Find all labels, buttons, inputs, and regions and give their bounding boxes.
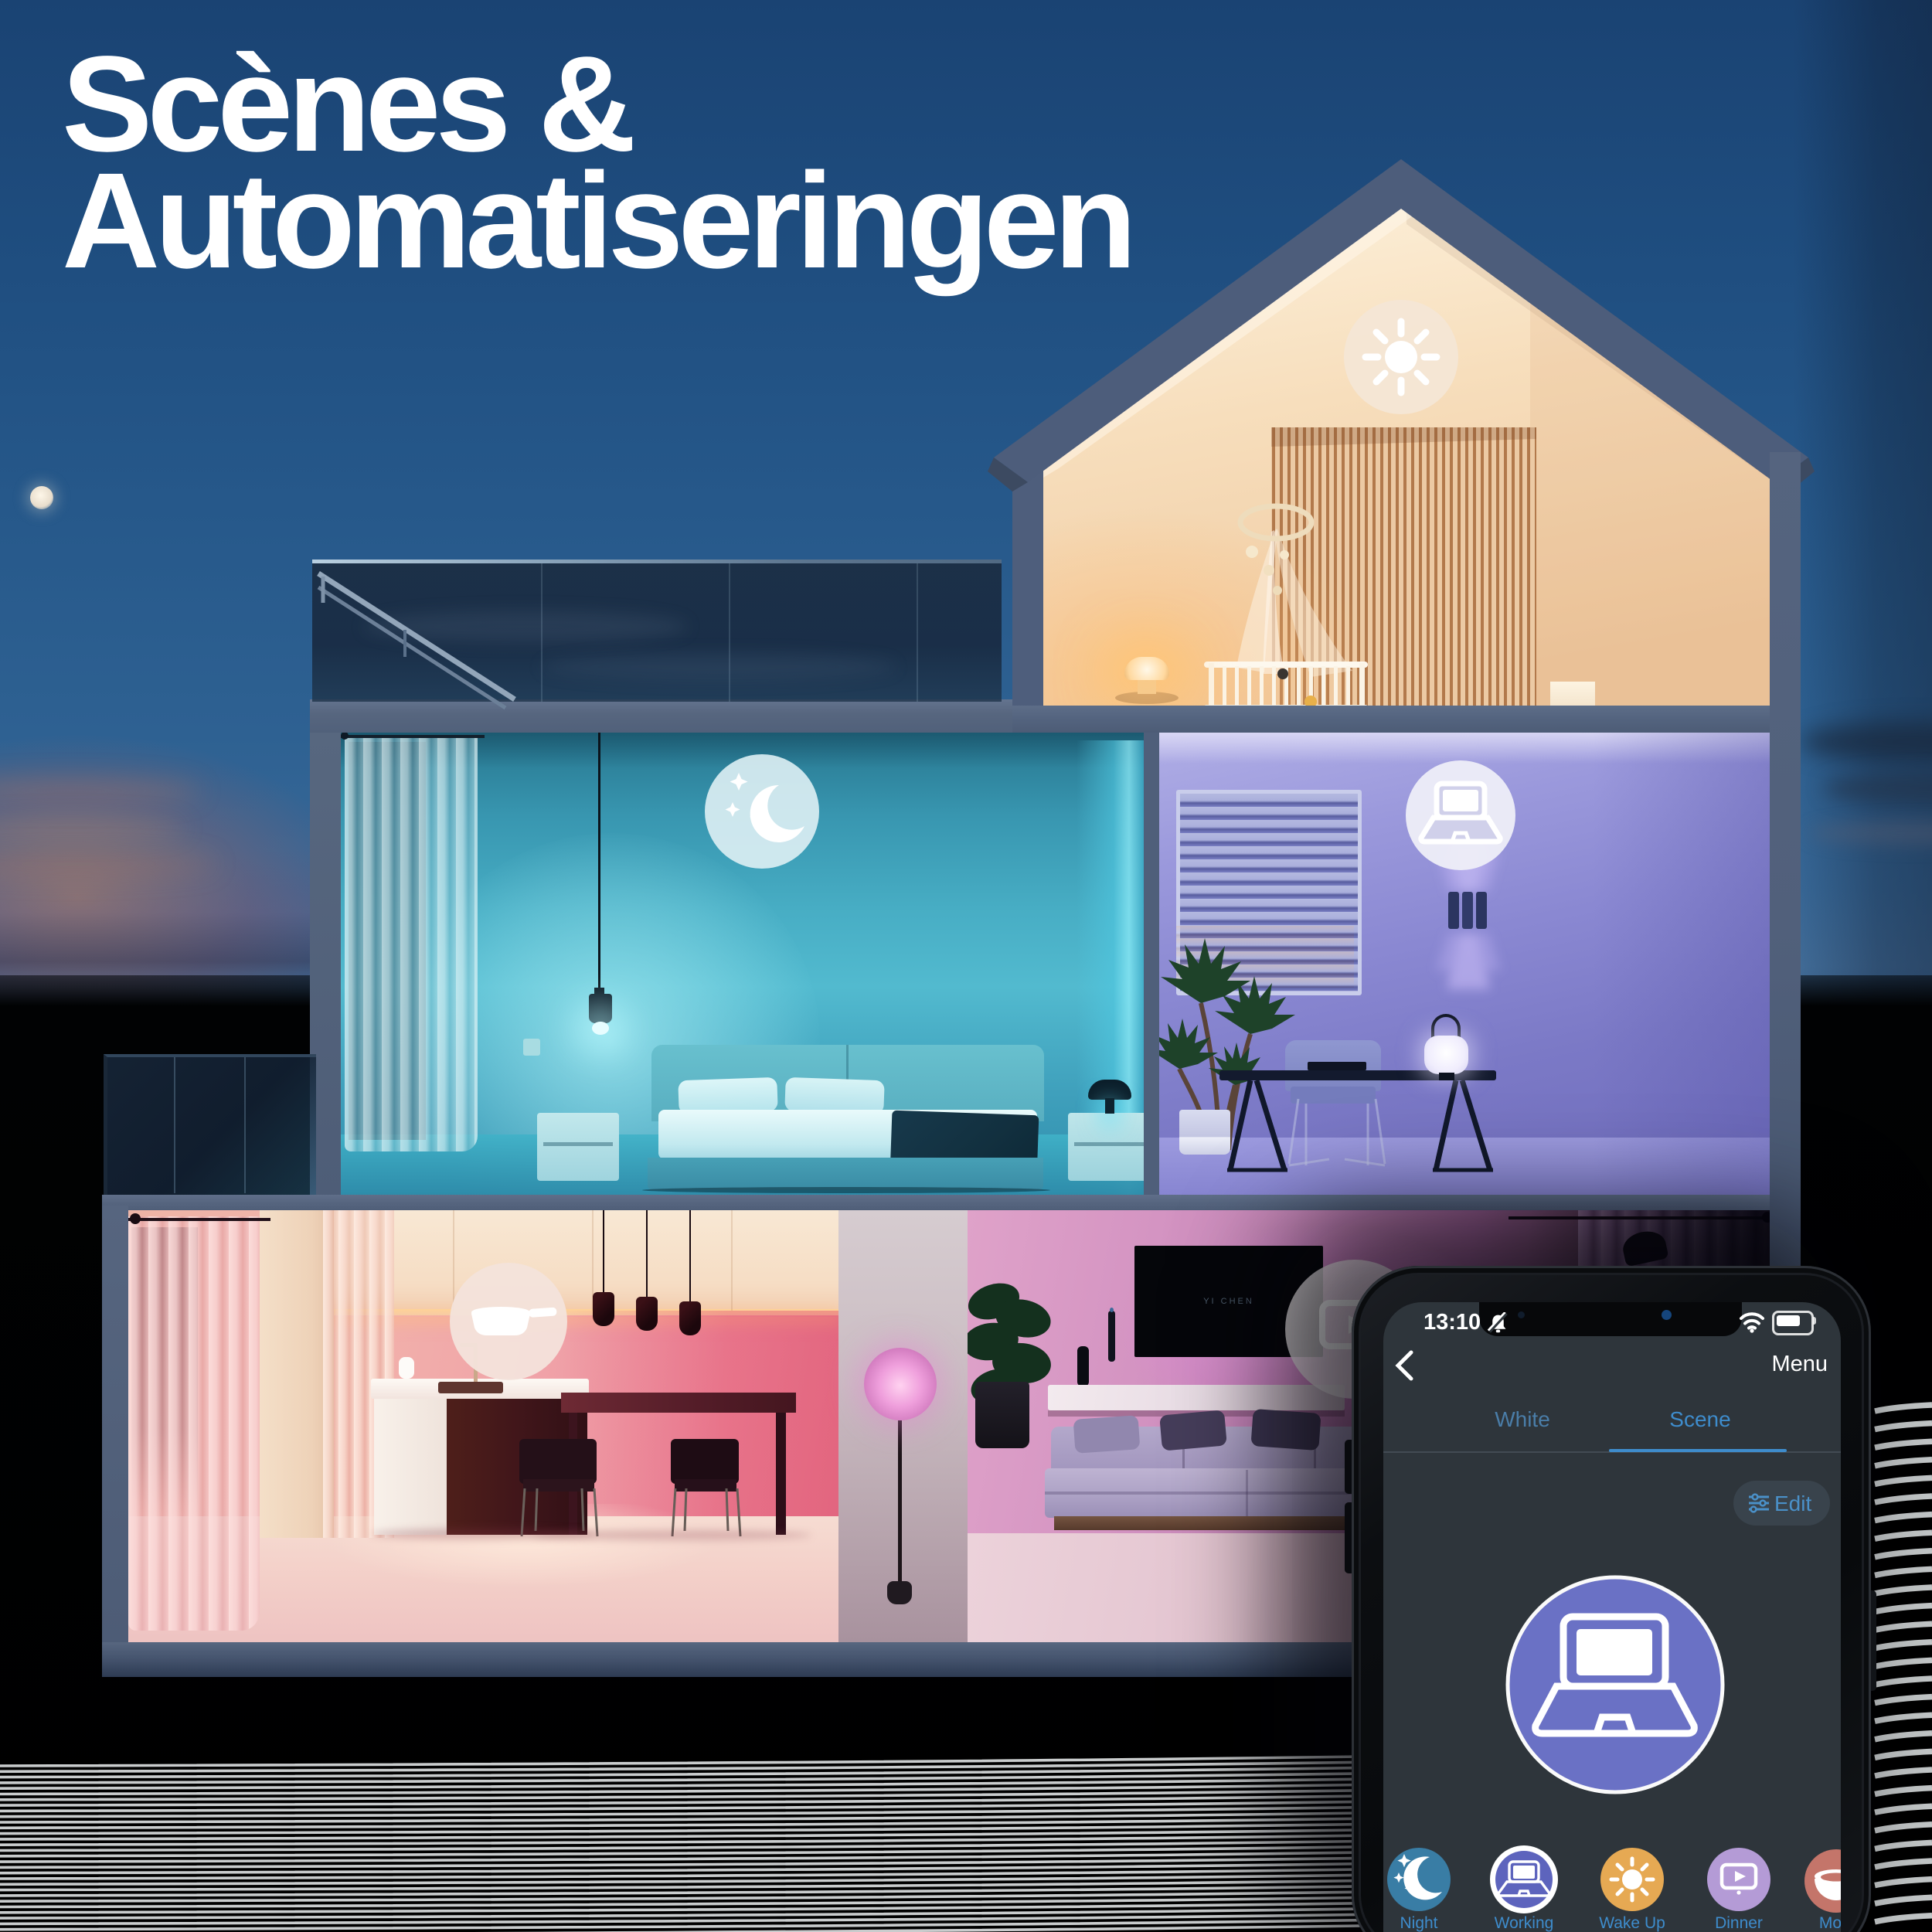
svg-text:Movi: Movi bbox=[1819, 1914, 1841, 1932]
svg-text:Night: Night bbox=[1400, 1914, 1437, 1932]
svg-text:Wake Up: Wake Up bbox=[1599, 1914, 1665, 1932]
svg-text:Working: Working bbox=[1495, 1914, 1554, 1932]
svg-text:Dinner: Dinner bbox=[1715, 1914, 1763, 1932]
